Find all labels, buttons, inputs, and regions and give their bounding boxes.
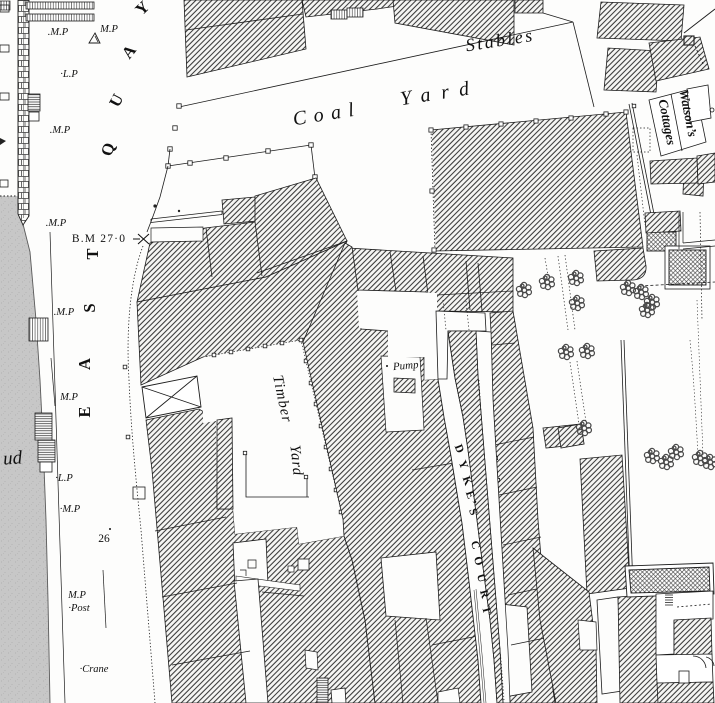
svg-text:B.M 27·0: B.M 27·0 [72,233,126,245]
svg-text:M.P: M.P [67,590,86,601]
svg-text:E: E [75,406,94,417]
svg-text:.M.P: .M.P [50,125,71,136]
svg-text:·L.P: ·L.P [60,69,78,80]
svg-text:M.P: M.P [59,392,78,403]
svg-text:·M.P: ·M.P [60,504,81,515]
svg-text:·L.P: ·L.P [55,473,73,484]
svg-text:.M.P: .M.P [48,27,69,38]
svg-text:A: A [75,358,94,370]
svg-text:S: S [80,303,99,312]
svg-text:Pump: Pump [391,359,419,373]
svg-text:M.P: M.P [99,24,118,35]
svg-text:·Crane: ·Crane [80,664,109,675]
svg-text:·Post: ·Post [68,603,90,614]
svg-text:.M.P: .M.P [54,307,75,318]
svg-text:Yard: Yard [286,444,305,477]
svg-text:ud: ud [2,447,23,469]
svg-text:T: T [83,248,102,259]
svg-text:.M.P: .M.P [46,218,67,229]
svg-text:26: 26 [98,533,110,545]
